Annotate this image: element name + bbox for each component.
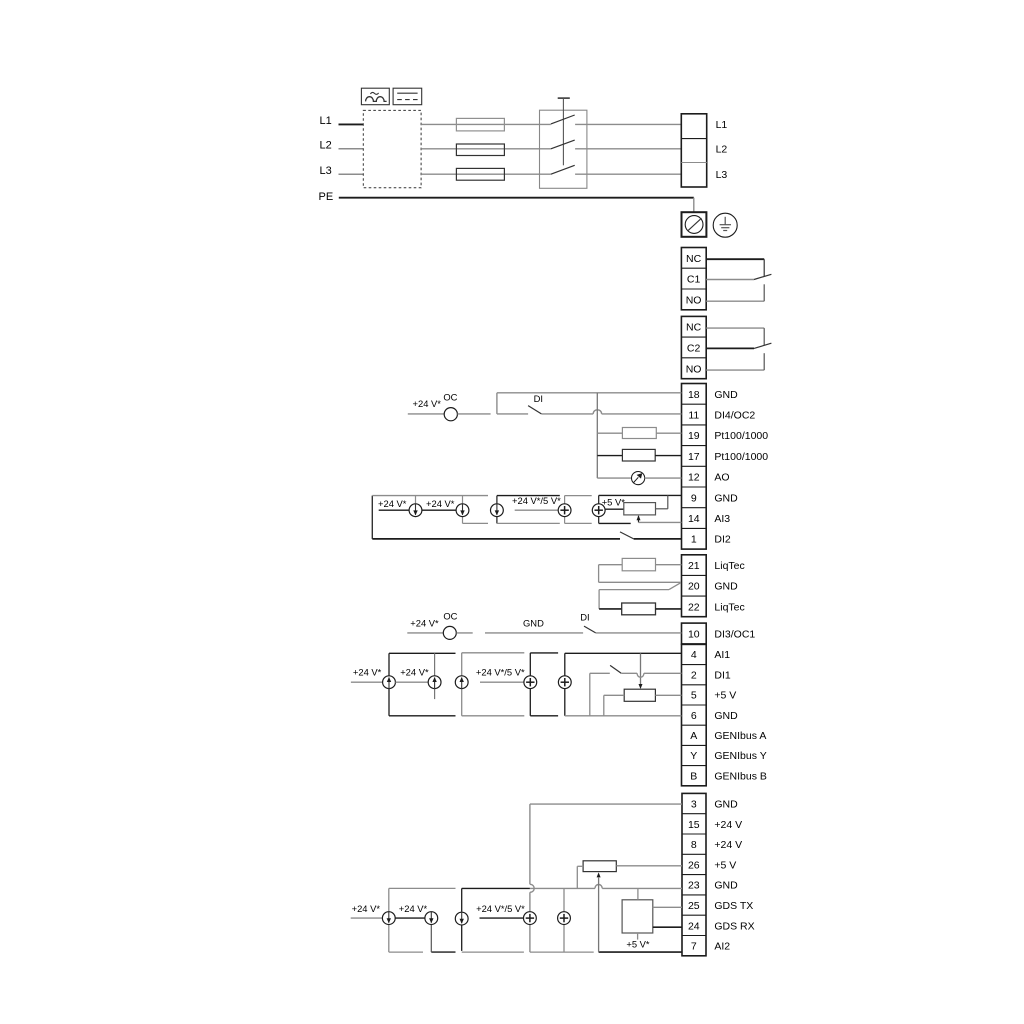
svg-text:9: 9	[691, 492, 697, 504]
svg-text:23: 23	[688, 880, 700, 892]
svg-text:+24 V: +24 V	[714, 819, 742, 831]
svg-text:Pt100/1000: Pt100/1000	[714, 451, 768, 463]
svg-text:24: 24	[688, 920, 700, 932]
svg-text:PE: PE	[319, 191, 334, 203]
svg-text:Y: Y	[690, 750, 697, 762]
svg-text:+24 V*/5 V*: +24 V*/5 V*	[512, 495, 561, 506]
svg-text:L2: L2	[320, 140, 332, 152]
svg-text:+24 V*: +24 V*	[410, 618, 439, 629]
svg-text:GND: GND	[714, 492, 738, 504]
svg-text:2: 2	[691, 669, 697, 681]
svg-text:OC: OC	[443, 611, 457, 622]
svg-text:10: 10	[688, 628, 700, 640]
svg-text:GENIbus Y: GENIbus Y	[714, 750, 766, 762]
svg-text:3: 3	[691, 798, 697, 810]
svg-text:GDS TX: GDS TX	[714, 900, 753, 912]
svg-text:DI2: DI2	[714, 534, 731, 546]
svg-text:+24 V*: +24 V*	[426, 498, 455, 509]
svg-text:14: 14	[688, 513, 700, 525]
svg-text:C1: C1	[687, 274, 701, 286]
svg-text:GND: GND	[714, 389, 738, 401]
svg-text:NO: NO	[686, 363, 702, 375]
svg-text:AI1: AI1	[714, 649, 730, 661]
svg-text:L1: L1	[716, 119, 728, 131]
svg-text:GND: GND	[523, 618, 544, 629]
svg-text:18: 18	[688, 389, 700, 401]
svg-text:AI2: AI2	[714, 941, 730, 953]
svg-text:Pt100/1000: Pt100/1000	[714, 430, 768, 442]
svg-text:+24 V*: +24 V*	[378, 498, 407, 509]
svg-text:+5 V: +5 V	[714, 690, 736, 702]
svg-text:+24 V*: +24 V*	[399, 903, 428, 914]
svg-text:LiqTec: LiqTec	[714, 601, 744, 613]
svg-text:B: B	[690, 770, 697, 782]
svg-text:OC: OC	[443, 392, 457, 403]
svg-text:+24 V*: +24 V*	[352, 903, 381, 914]
svg-text:6: 6	[691, 710, 697, 722]
svg-text:GND: GND	[714, 880, 738, 892]
svg-text:L1: L1	[320, 115, 332, 127]
svg-text:GENIbus A: GENIbus A	[714, 730, 766, 742]
svg-text:DI4/OC2: DI4/OC2	[714, 409, 755, 421]
svg-text:C2: C2	[687, 343, 701, 355]
svg-text:+24 V*: +24 V*	[413, 398, 442, 409]
svg-text:15: 15	[688, 819, 700, 831]
svg-text:L2: L2	[716, 144, 728, 156]
svg-text:20: 20	[688, 581, 700, 593]
svg-text:8: 8	[691, 839, 697, 851]
svg-text:GND: GND	[714, 581, 738, 593]
svg-text:GND: GND	[714, 710, 738, 722]
svg-text:NO: NO	[686, 294, 702, 306]
svg-text:17: 17	[688, 451, 700, 463]
svg-text:DI3/OC1: DI3/OC1	[714, 628, 755, 640]
svg-text:L3: L3	[716, 169, 728, 181]
svg-text:L3: L3	[320, 165, 332, 177]
svg-text:7: 7	[691, 941, 697, 953]
svg-text:AO: AO	[714, 472, 729, 484]
svg-text:DI: DI	[580, 612, 589, 623]
svg-text:+5 V: +5 V	[714, 859, 736, 871]
svg-text:+24 V*/5 V*: +24 V*/5 V*	[476, 903, 525, 914]
svg-text:12: 12	[688, 472, 700, 484]
svg-text:GDS RX: GDS RX	[714, 920, 754, 932]
svg-text:5: 5	[691, 690, 697, 702]
svg-text:19: 19	[688, 430, 700, 442]
svg-text:A: A	[690, 730, 697, 742]
svg-text:GND: GND	[714, 798, 738, 810]
svg-text:NC: NC	[686, 253, 702, 265]
svg-text:+24 V*: +24 V*	[400, 666, 429, 677]
svg-text:+24 V: +24 V	[714, 839, 742, 851]
svg-text:+24 V*: +24 V*	[353, 666, 382, 677]
svg-text:21: 21	[688, 560, 700, 572]
svg-text:GENIbus B: GENIbus B	[714, 770, 767, 782]
svg-text:26: 26	[688, 859, 700, 871]
svg-text:4: 4	[691, 649, 697, 661]
svg-text:1: 1	[691, 534, 697, 546]
svg-text:DI: DI	[534, 393, 543, 404]
svg-text:+5 V*: +5 V*	[602, 497, 626, 508]
svg-text:25: 25	[688, 900, 700, 912]
svg-text:22: 22	[688, 601, 700, 613]
svg-text:11: 11	[688, 409, 699, 421]
svg-text:+24 V*/5 V*: +24 V*/5 V*	[476, 666, 525, 677]
svg-text:DI1: DI1	[714, 669, 731, 681]
svg-text:+5 V*: +5 V*	[626, 938, 650, 949]
svg-text:LiqTec: LiqTec	[714, 560, 744, 572]
svg-text:AI3: AI3	[714, 513, 730, 525]
svg-text:NC: NC	[686, 322, 702, 334]
